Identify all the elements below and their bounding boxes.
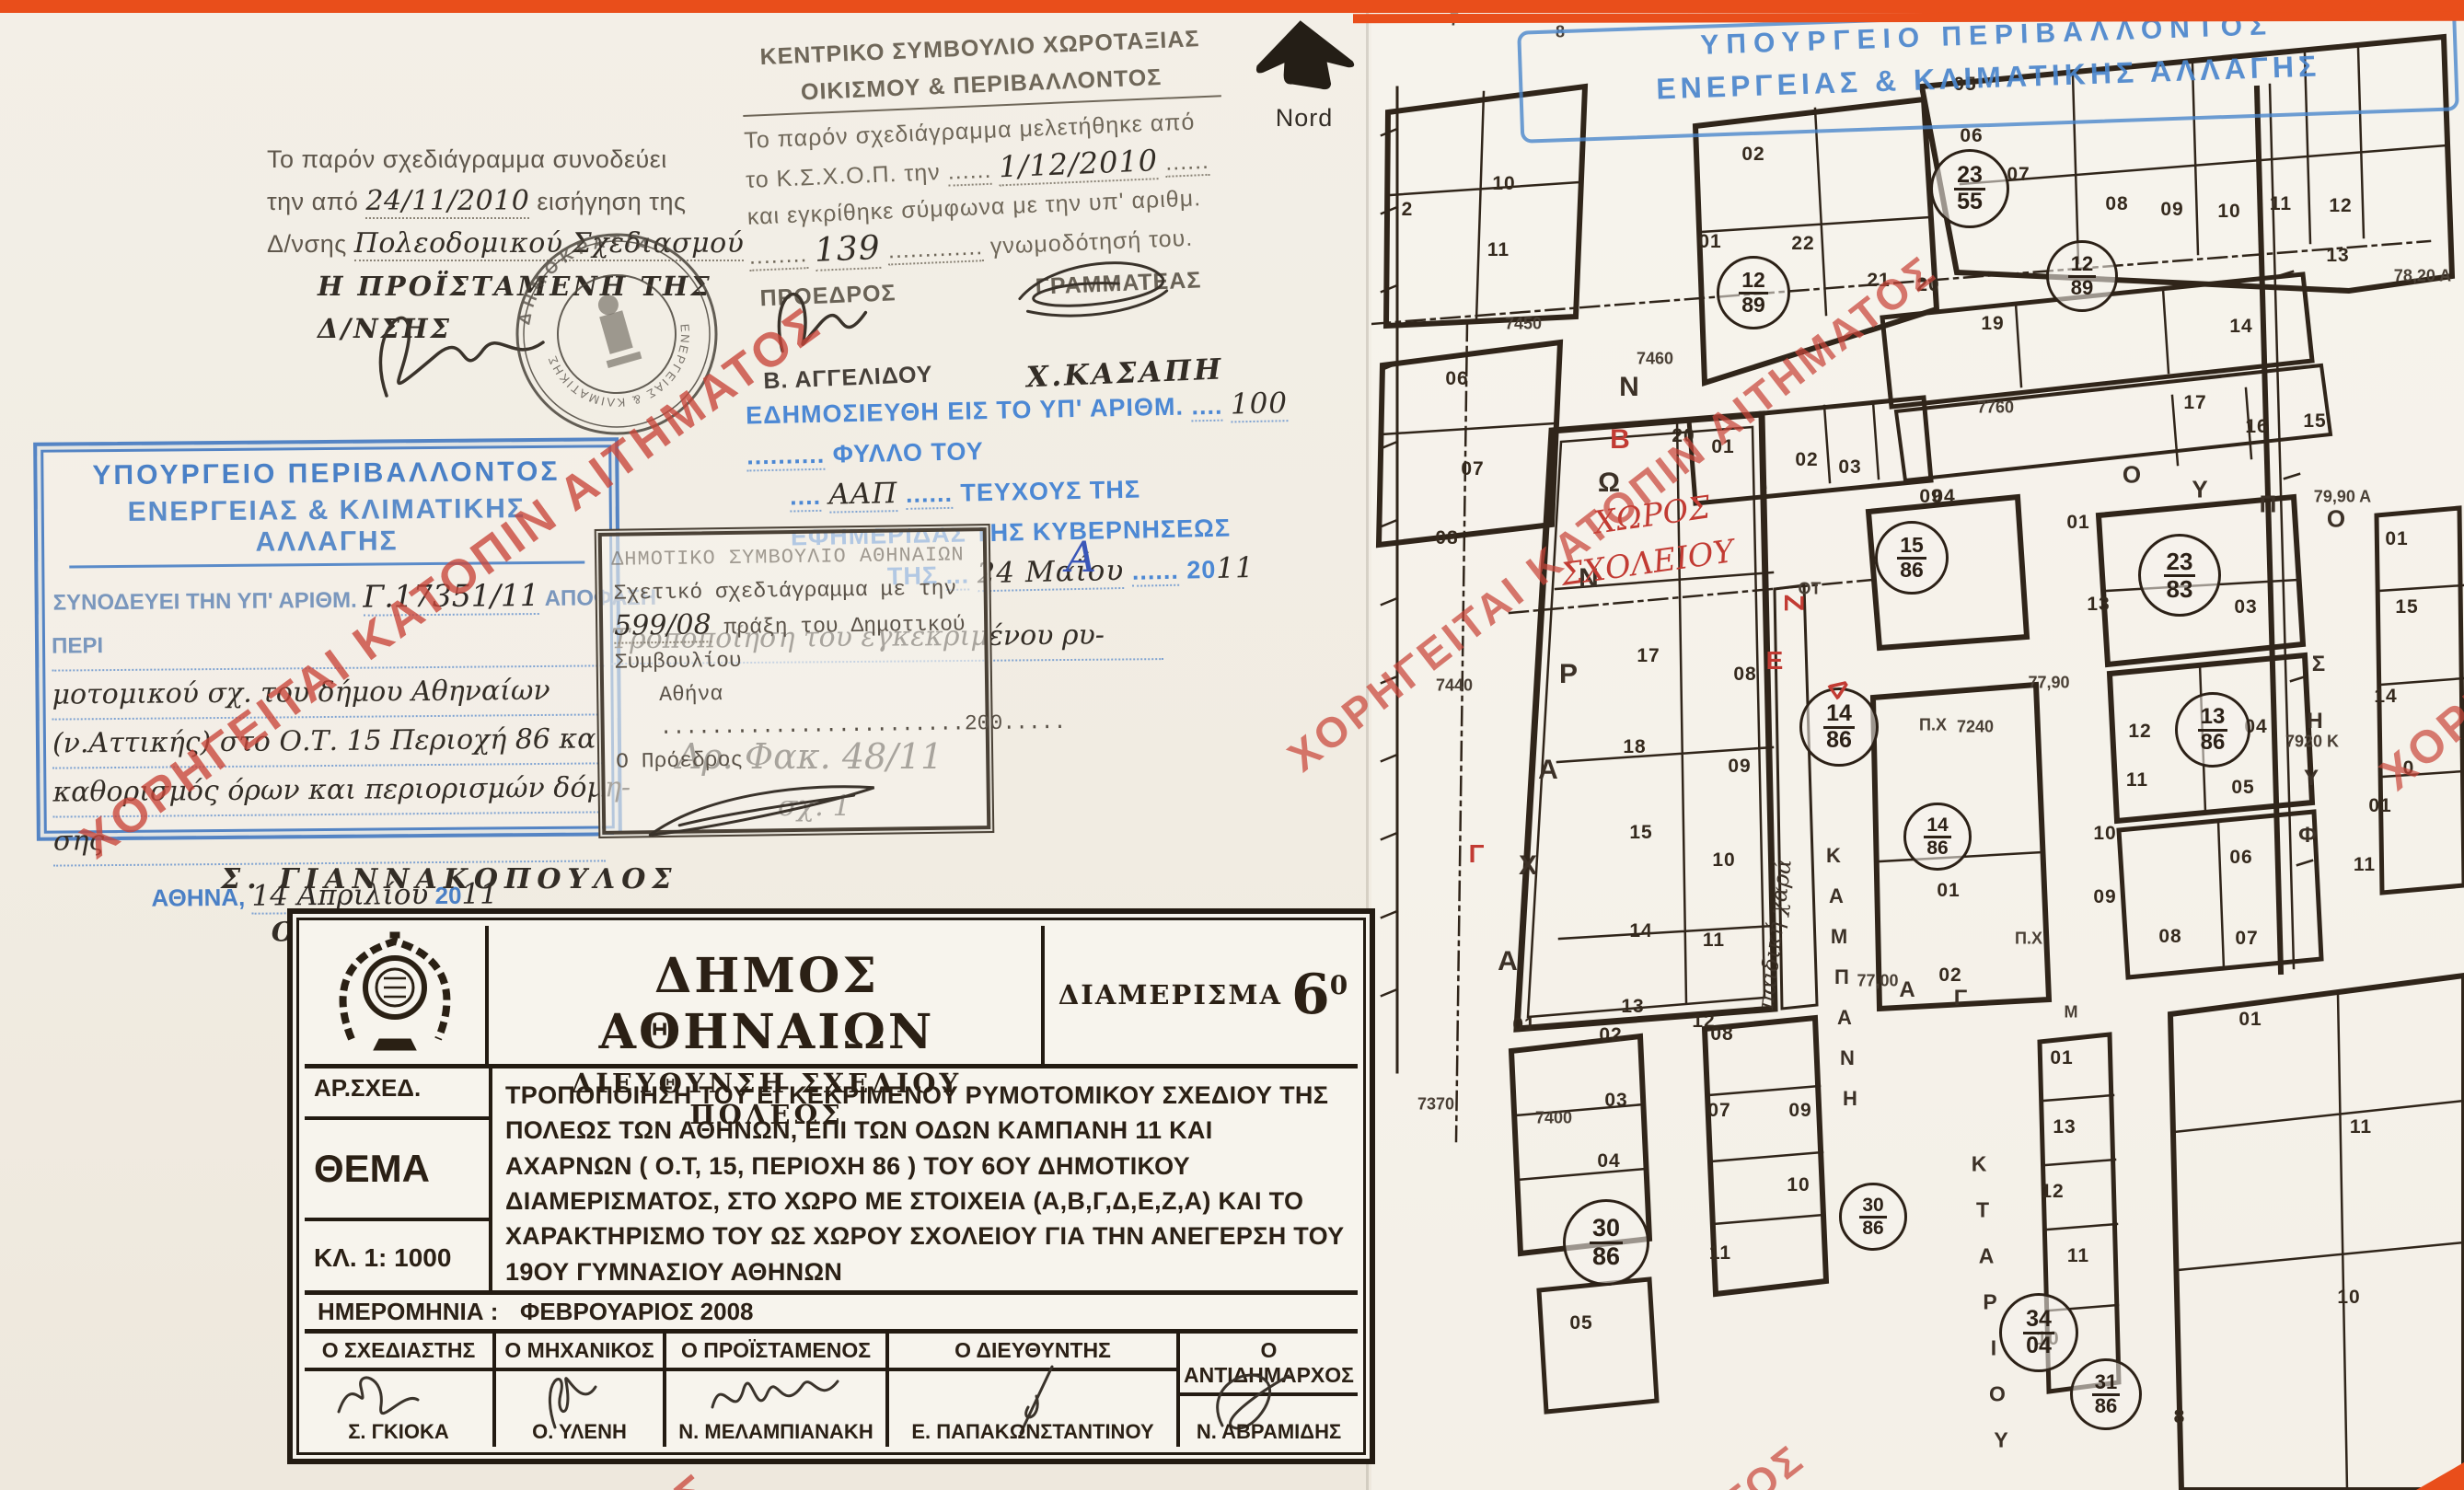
council-number-handwritten: 139 — [814, 229, 881, 271]
signature-cell-3: Ο ΠΡΟΪΣΤΑΜΕΝΟΣΝ. ΜΕΛΑΜΠΙΑΝΑΚΗ — [666, 1334, 889, 1447]
blue-pen-annotation-a: Α — [1066, 532, 1096, 582]
peri-label: ΠΕΡΙ — [52, 618, 604, 671]
ministry-decision-line: ΣΥΝΟΔΕΥΕΙ ΤΗΝ ΥΠ' ΑΡΙΘΜ. Γ.17351/11 ΑΠΟΦ… — [52, 576, 601, 617]
athens-coat-of-arms-icon — [326, 930, 464, 1059]
signature-name: Σ. ΓΚΙΟΚΑ — [305, 1420, 492, 1444]
municipal-act-number-handwritten: 599/08 — [614, 608, 711, 643]
decision-number-handwritten: Γ.17351/11 — [363, 577, 539, 617]
municipal-line1: Σχετικό σχεδιάγραμμα με την — [613, 572, 972, 609]
signature-cell-1: Ο ΣΧΕΔΙΑΣΤΗΣΣ. ΓΚΙΟΚΑ — [305, 1334, 496, 1447]
municipality-emblem-cell — [305, 926, 489, 1064]
signature-cell-2: Ο ΜΗΧΑΝΙΚΟΣΟ. ΥΛΕΝΗ — [496, 1334, 666, 1447]
north-indicator: Nord — [1244, 18, 1364, 133]
central-council-stamp: ΚΕΝΤΡΙΚΟ ΣΥΜΒΟΥΛΙΟ ΧΩΡΟΤΑΞΙΑΣ ΟΙΚΙΣΜΟΥ &… — [740, 19, 1233, 407]
subject-label: ΘΕΜΑ — [305, 1120, 492, 1221]
watermark-text: ΤΟΣ — [608, 1461, 724, 1490]
signature-name: Ν. ΑΒΡΑΜΙΔΗΣ — [1180, 1420, 1358, 1444]
title-block: ΔΗΜΟΣ ΑΘΗΝΑΙΩΝ ΔΙΕΥΘΥΝΣΗ ΣΧΕΔΙΟΥ ΠΟΛΕΩΣ … — [287, 908, 1375, 1464]
secretary-signature — [1007, 249, 1186, 340]
scanned-document-page: 1011206070802012221200102030506070809101… — [0, 0, 2464, 1490]
signature-cell-4: Ο ΔΙΕΥΘΥΝΤΗΣΕ. ΠΑΠΑΚΩΝΣΤΑΝΤΙΝΟΥ — [889, 1334, 1180, 1447]
fek-year-handwritten: 11 — [1216, 551, 1255, 585]
municipal-line3: Συμβουλίου — [614, 641, 973, 678]
district-label: ΔΙΑΜΕΡΙΣΜΑ — [1058, 979, 1282, 1011]
note-line1: Το παρόν σχεδιάγραμμα συνοδεύει — [267, 138, 746, 180]
fek-date-handwritten: 24 Μαΐου — [977, 554, 1124, 592]
scale-label: ΚΛ. 1: 1000 — [305, 1221, 492, 1295]
municipal-council-stamp: ΔΗΜΟΤΙΚΟ ΣΥΜΒΟΥΛΙΟ ΑΘΗΝΑΙΩΝ Σχετικό σχεδ… — [598, 527, 991, 835]
drawing-number-label: ΑΡ.ΣΧΕΔ. — [305, 1068, 492, 1120]
municipal-president-label: Ο Πρόεδρος — [616, 740, 975, 778]
scan-edge-top — [0, 0, 2464, 13]
cadastral-map — [1371, 0, 2464, 1490]
council-date-handwritten: 1/12/2010 — [998, 143, 1159, 186]
ministry-approval-box: ΥΠΟΥΡΓΕΙΟ ΠΕΡΙΒΑΛΛΟΝΤΟΣ ΕΝΕΡΓΕΙΑΣ & ΚΛΙΜ… — [33, 437, 622, 841]
publication-line1: ΕΔΗΜΟΣΙΕΥΘΗ ΕΙΣ ΤΟ ΥΠ' ΑΡΙΘΜ. .... 100 .… — [746, 383, 1318, 477]
president-signature — [758, 266, 882, 363]
subject-handwritten-text: καθορισμός όρων και περιορισμών δόμη- — [52, 764, 605, 817]
ministry-title1: ΥΠΟΥΡΓΕΙΟ ΠΕΡΙΒΑΛΛΟΝΤΟΣ — [37, 456, 615, 491]
scan-edge-corner — [2416, 1462, 2464, 1490]
municipal-president-signature — [642, 775, 882, 843]
ministry-subject-lines: ΠΕΡΙΤροποποίηση του εγκεκριμένου ρυ- μοτ… — [39, 616, 619, 866]
north-arrow-icon — [1245, 13, 1363, 103]
subject-text: ΤΡΟΠΟΠΟΙΗΣΗ ΤΟΥ ΕΓΚΕΚΡΙΜΕΝΟΥ ΡΥΜΟΤΟΜΙΚΟΥ… — [492, 1068, 1358, 1295]
district-number: 60 — [1291, 967, 1348, 1022]
signature-row: Ο ΣΧΕΔΙΑΣΤΗΣΣ. ΓΚΙΟΚΑΟ ΜΗΧΑΝΙΚΟΣΟ. ΥΛΕΝΗ… — [305, 1329, 1358, 1447]
municipality-name: ΔΗΜΟΣ ΑΘΗΝΑΙΩΝ — [492, 948, 1041, 1060]
municipal-stamp-header: ΔΗΜΟΤΙΚΟ ΣΥΜΒΟΥΛΙΟ ΑΘΗΝΑΙΩΝ — [611, 538, 974, 576]
date-row: ΗΜΕΡΟΜΗΝΙΑ : ΦΕΒΡΟΥΑΡΙΟΣ 2008 — [305, 1290, 1358, 1329]
title-block-middle: ΑΡ.ΣΧΕΔ. ΘΕΜΑ ΚΛ. 1: 1000 ΤΡΟΠΟΠΟΙΗΣΗ ΤΟ… — [305, 1064, 1358, 1290]
subject-handwritten-line: καθορισμός όρων και περιορισμών δόμη- — [52, 764, 605, 817]
subject-handwritten-text: (ν.Αττικής) στο Ο.Τ. 15 Περιοχή 86 και — [52, 715, 605, 768]
director-name: Σ. ΓΙΑΝΝΑΚΟΠΟΥΛΟΣ — [221, 863, 678, 895]
district-cell: ΔΙΑΜΕΡΙΣΜΑ 60 — [1048, 926, 1358, 1064]
organization-cell: ΔΗΜΟΣ ΑΘΗΝΑΙΩΝ ΔΙΕΥΘΥΝΣΗ ΣΧΕΔΙΟΥ ΠΟΛΕΩΣ — [492, 926, 1045, 1064]
subject-handwritten-line: μοτομικού σχ. του δήμου Αθηναίων — [52, 666, 604, 720]
subject-handwritten-line: (ν.Αττικής) στο Ο.Τ. 15 Περιοχή 86 και — [52, 715, 605, 768]
note-date-handwritten: 24/11/2010 — [365, 185, 529, 219]
signature-name: Ν. ΜΕΛΑΜΠΙΑΝΑΚΗ — [666, 1420, 885, 1444]
ministry-hand-lines: μοτομικού σχ. του δήμου Αθηναίων(ν.Αττικ… — [39, 666, 619, 866]
fek-issue-handwritten: ΑΑΠ — [828, 477, 898, 514]
date-label: ΗΜΕΡΟΜΗΝΙΑ : — [318, 1298, 520, 1326]
subject-handwritten-text: σης — [53, 813, 606, 866]
municipal-line2: 599/08 πράξη του Δημοτικού — [614, 605, 974, 645]
ministry-title2: ΕΝΕΡΓΕΙΑΣ & ΚΛΙΜΑΤΙΚΗΣ ΑΛΛΑΓΗΣ — [69, 493, 585, 569]
left-label-column: ΑΡ.ΣΧΕΔ. ΘΕΜΑ ΚΛ. 1: 1000 — [305, 1068, 492, 1295]
north-label: Nord — [1244, 104, 1364, 133]
subject-handwritten-text: μοτομικού σχ. του δήμου Αθηναίων — [52, 666, 604, 720]
subject-handwritten-line: σης — [53, 813, 606, 866]
signature-name: Ε. ΠΑΠΑΚΩΝΣΤΑΝΤΙΝΟΥ — [889, 1420, 1176, 1444]
fek-number-handwritten: 100 — [1231, 387, 1289, 422]
municipal-line4: Αθήνα ........................200..... — [659, 674, 975, 745]
signature-cell-5: Ο ΑΝΤΙΔΗΜΑΡΧΟΣΝ. ΑΒΡΑΜΙΔΗΣ — [1180, 1334, 1358, 1447]
signature-name: Ο. ΥΛΕΝΗ — [496, 1420, 663, 1444]
date-value: ΦΕΒΡΟΥΑΡΙΟΣ 2008 — [520, 1298, 754, 1326]
